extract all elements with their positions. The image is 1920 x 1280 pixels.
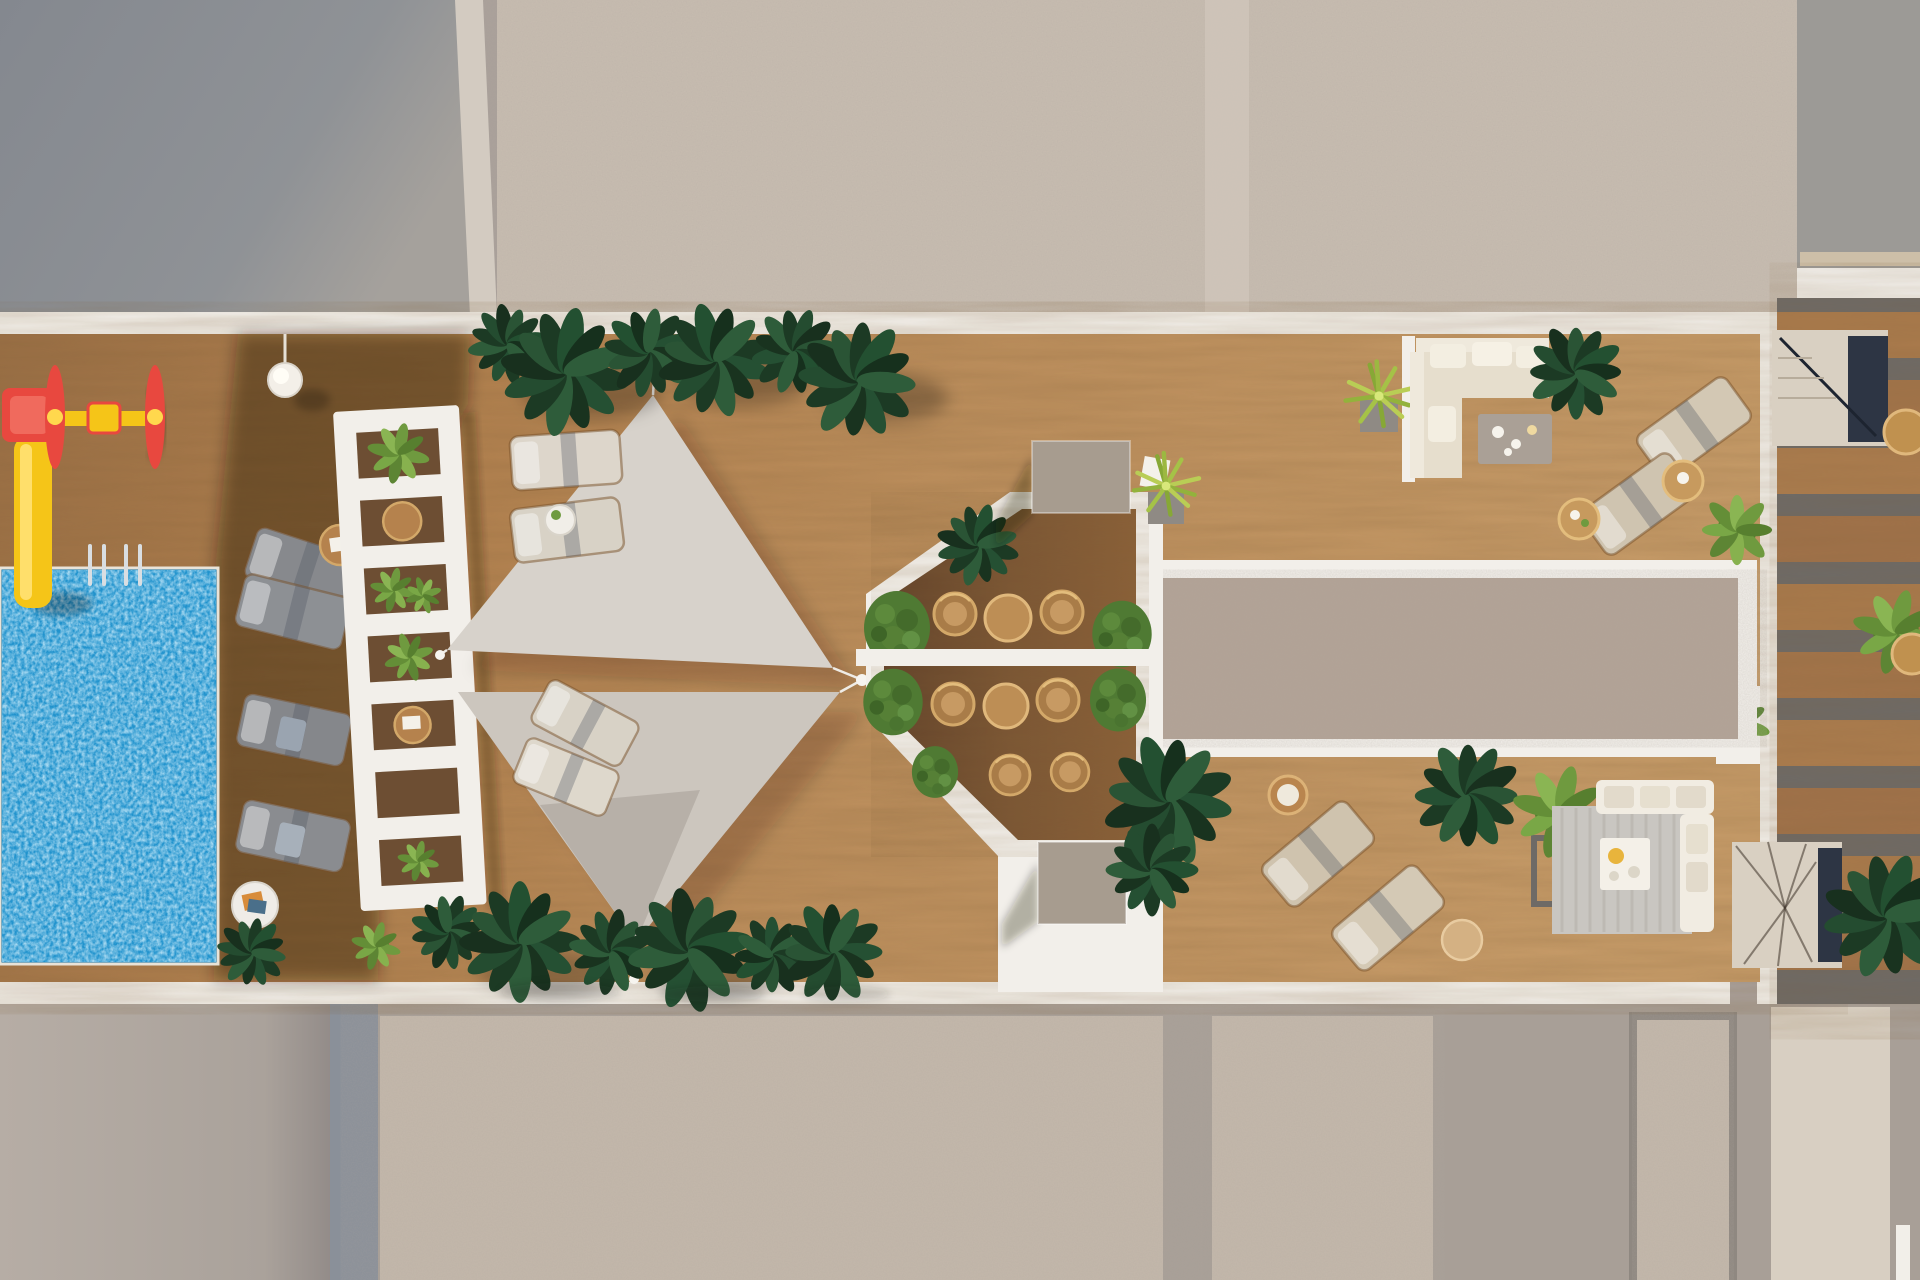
lower-concrete-band <box>0 1002 1920 1280</box>
dining-low-table <box>1600 838 1650 890</box>
octagon-divider <box>856 649 1152 666</box>
table-plant <box>551 510 561 520</box>
top-right-beige-slat <box>1800 252 1920 266</box>
bottom-left-roof-block <box>0 1002 330 1280</box>
round-side-table <box>1559 499 1599 539</box>
slide-chute-highlight <box>20 444 32 600</box>
slide-top-inner <box>10 396 48 434</box>
terrace-round-table <box>1892 634 1920 674</box>
table-cup <box>1504 448 1512 456</box>
sofa-pillow <box>1430 344 1466 368</box>
corner-white-post <box>1896 1225 1910 1280</box>
slide-chute <box>14 436 52 608</box>
bottom-left-shadow-strip <box>330 1002 378 1280</box>
pool-water-sparkle <box>2 570 216 962</box>
spinner-hub <box>88 403 120 433</box>
magazine <box>247 899 267 914</box>
table-cup <box>1511 439 1521 449</box>
roof-cube-bottom <box>1038 842 1126 924</box>
tray-top <box>1277 784 1299 806</box>
table-plant <box>1581 519 1589 527</box>
sofa-cushion <box>1640 786 1670 808</box>
upper-stair-landing <box>1772 330 1888 446</box>
sofa-pillow <box>1428 406 1456 442</box>
dining-chair <box>1037 679 1079 721</box>
dining-table <box>985 595 1031 641</box>
upper-concrete-band <box>0 0 1920 316</box>
courtyard-gravel-texture <box>1163 578 1738 739</box>
spinner-cap <box>47 409 63 425</box>
upper-speckle-texture <box>497 0 1797 312</box>
walkway-strip <box>1771 1007 1890 1280</box>
round-side-table <box>1442 920 1482 960</box>
top-left-roof-block <box>0 0 483 316</box>
table-cup <box>1677 472 1689 484</box>
plate <box>1609 871 1619 881</box>
cream-lounger <box>509 429 622 491</box>
fan-staircase <box>1732 842 1842 968</box>
dining-table <box>984 684 1028 728</box>
inner-courtyard <box>1145 560 1757 757</box>
terrace-round-table <box>1884 410 1920 454</box>
octagon-hedge <box>912 746 958 798</box>
sofa-cushion <box>1676 786 1706 808</box>
dining-chair <box>990 755 1030 795</box>
pergola-planter-wall <box>333 404 503 915</box>
sofa-cushion <box>1604 786 1634 808</box>
render-canvas <box>0 0 1920 1280</box>
food-bowl <box>1608 848 1624 864</box>
sail-anchor-post <box>435 650 445 660</box>
lower-speckle-texture-b <box>1212 1016 1433 1280</box>
octagon-hedge <box>863 669 922 736</box>
octagon-hedge <box>1090 669 1146 732</box>
pergola-table-book <box>402 716 421 730</box>
dining-chair <box>1051 753 1089 791</box>
table-cup <box>1492 426 1504 438</box>
dining-chair <box>1041 591 1083 633</box>
lower-speckle-texture-c <box>1637 1020 1729 1280</box>
top-right-white-band <box>1797 268 1920 298</box>
roof-cube-top <box>1032 441 1130 513</box>
sofa-pillow <box>1472 342 1512 366</box>
spinner-cap <box>147 409 163 425</box>
lower-speckle-texture-a <box>380 1016 1163 1280</box>
lamp-glow <box>273 368 289 384</box>
table-cup <box>1570 510 1580 520</box>
table-cup <box>1527 425 1537 435</box>
dining-chair <box>934 593 976 635</box>
rooftop-terrace-render <box>0 0 1920 1280</box>
sofa-cushion <box>1686 824 1708 854</box>
plate <box>1628 866 1640 878</box>
coffee-table <box>1478 414 1552 464</box>
sofa-cushion <box>1686 862 1708 892</box>
small-round-table <box>545 505 575 535</box>
dining-chair <box>932 683 974 725</box>
sofa-back-rail <box>1410 352 1424 478</box>
pergola-table <box>382 501 422 541</box>
upper-slab-joint <box>1205 0 1249 312</box>
